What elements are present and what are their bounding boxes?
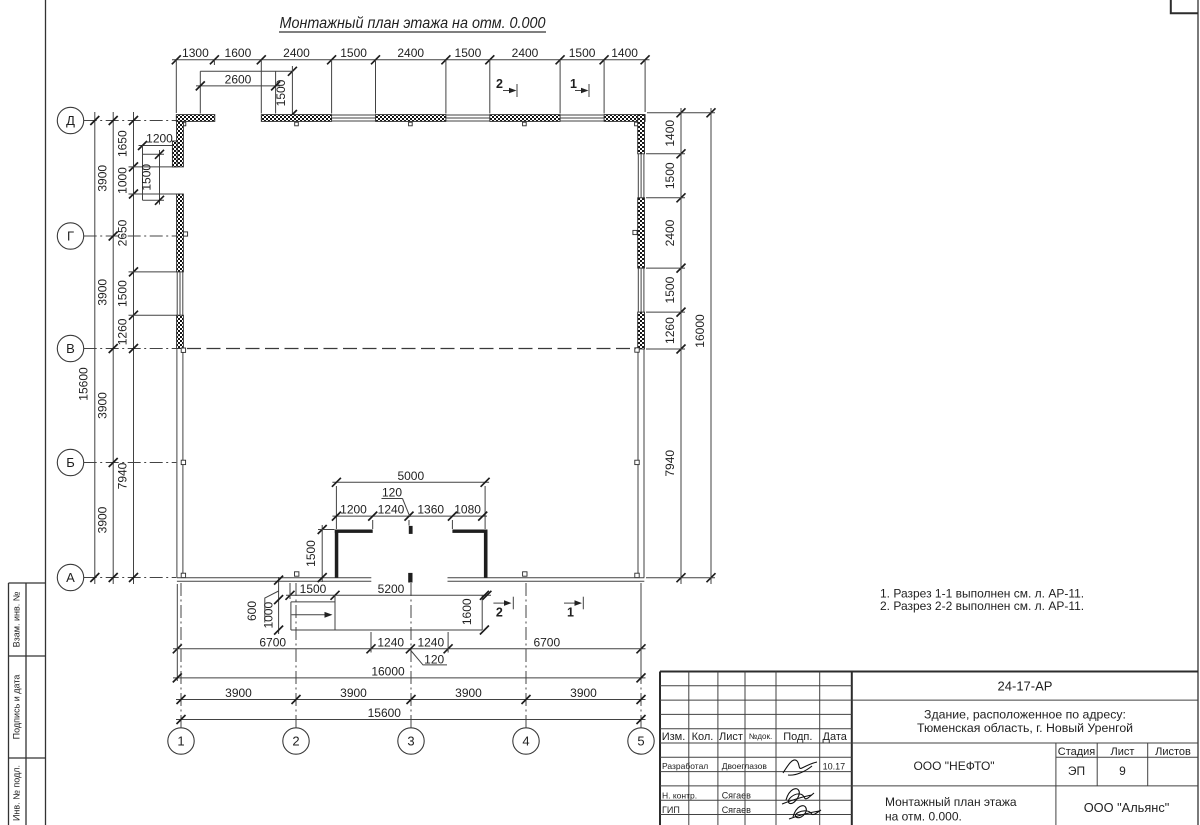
svg-text:5000: 5000 xyxy=(397,469,424,483)
svg-text:2. Разрез 2-2 выполнен см. л.: 2. Разрез 2-2 выполнен см. л. АР-11. xyxy=(880,599,1084,613)
svg-text:2400: 2400 xyxy=(283,46,310,60)
svg-text:1400: 1400 xyxy=(663,120,677,147)
svg-text:Дата: Дата xyxy=(823,731,848,743)
svg-text:ЭП: ЭП xyxy=(1068,764,1085,778)
svg-text:ГИП: ГИП xyxy=(662,805,680,815)
svg-text:1: 1 xyxy=(177,734,184,749)
svg-text:Монтажный план этажа на отм. 0: Монтажный план этажа на отм. 0.000 xyxy=(280,15,546,32)
svg-text:1240: 1240 xyxy=(417,635,444,649)
svg-text:Разработал: Разработал xyxy=(662,761,708,771)
svg-text:Стадия: Стадия xyxy=(1058,746,1096,758)
svg-text:3900: 3900 xyxy=(225,686,252,700)
svg-text:5200: 5200 xyxy=(378,582,405,596)
svg-text:1600: 1600 xyxy=(225,46,252,60)
svg-text:Сягаев: Сягаев xyxy=(722,805,751,815)
svg-text:16000: 16000 xyxy=(693,314,707,348)
svg-text:1500: 1500 xyxy=(300,582,327,596)
svg-text:1500: 1500 xyxy=(116,280,130,307)
svg-text:Г: Г xyxy=(67,229,74,244)
svg-text:2600: 2600 xyxy=(225,72,252,86)
svg-text:3900: 3900 xyxy=(95,165,109,192)
svg-text:Здание, расположенное по адрес: Здание, расположенное по адресу: xyxy=(924,708,1126,722)
svg-text:2400: 2400 xyxy=(512,46,539,60)
svg-text:15600: 15600 xyxy=(368,706,402,720)
svg-text:2400: 2400 xyxy=(663,219,677,246)
svg-text:2: 2 xyxy=(292,734,299,749)
svg-text:Д: Д xyxy=(66,113,75,128)
svg-text:1500: 1500 xyxy=(274,79,288,106)
svg-text:Лист: Лист xyxy=(719,731,743,743)
svg-text:В: В xyxy=(66,341,75,356)
svg-text:9: 9 xyxy=(1119,764,1126,778)
svg-text:на отм. 0.000.: на отм. 0.000. xyxy=(885,810,962,824)
svg-text:Подпись и дата: Подпись и дата xyxy=(12,675,22,740)
svg-text:Кол.: Кол. xyxy=(692,731,714,743)
svg-text:1500: 1500 xyxy=(663,276,677,303)
svg-text:120: 120 xyxy=(382,486,402,500)
svg-text:Изм.: Изм. xyxy=(662,731,686,743)
svg-text:1000: 1000 xyxy=(261,602,275,629)
svg-text:1400: 1400 xyxy=(611,46,638,60)
svg-text:Лист: Лист xyxy=(1111,746,1135,758)
svg-text:3900: 3900 xyxy=(95,279,109,306)
svg-text:Монтажный план этажа: Монтажный план этажа xyxy=(885,795,1017,809)
svg-text:1500: 1500 xyxy=(340,46,367,60)
svg-text:3900: 3900 xyxy=(95,392,109,419)
svg-text:Взам. инв. №: Взам. инв. № xyxy=(12,591,22,647)
svg-text:1200: 1200 xyxy=(146,132,173,146)
svg-text:24-17-АР: 24-17-АР xyxy=(998,679,1053,694)
svg-text:№док.: №док. xyxy=(749,732,772,741)
svg-text:6700: 6700 xyxy=(533,635,560,649)
svg-text:7940: 7940 xyxy=(663,450,677,477)
svg-text:3900: 3900 xyxy=(570,686,597,700)
svg-text:2: 2 xyxy=(496,606,503,620)
svg-text:1500: 1500 xyxy=(304,540,318,567)
svg-text:16000: 16000 xyxy=(371,664,405,678)
svg-text:5: 5 xyxy=(637,734,644,749)
svg-text:Тюменская область, г. Новый Ур: Тюменская область, г. Новый Уренгой xyxy=(917,721,1133,735)
svg-text:600: 600 xyxy=(245,601,259,621)
svg-text:1500: 1500 xyxy=(569,46,596,60)
svg-text:Н. контр.: Н. контр. xyxy=(662,791,697,801)
svg-text:1: 1 xyxy=(570,77,577,91)
svg-text:1500: 1500 xyxy=(663,162,677,189)
svg-text:10.17: 10.17 xyxy=(823,762,846,772)
svg-text:2650: 2650 xyxy=(116,219,130,246)
svg-text:Подп.: Подп. xyxy=(783,731,812,743)
svg-text:1240: 1240 xyxy=(377,635,404,649)
svg-text:3900: 3900 xyxy=(95,506,109,533)
svg-text:1080: 1080 xyxy=(454,503,481,517)
svg-text:1500: 1500 xyxy=(455,46,482,60)
svg-text:2400: 2400 xyxy=(397,46,424,60)
svg-text:1600: 1600 xyxy=(460,598,474,625)
svg-text:1000: 1000 xyxy=(116,167,130,194)
svg-text:1240: 1240 xyxy=(378,503,405,517)
svg-text:Двоеглазов: Двоеглазов xyxy=(722,761,768,771)
svg-text:Инв. № подл.: Инв. № подл. xyxy=(12,765,22,821)
svg-text:3900: 3900 xyxy=(455,686,482,700)
svg-text:ООО "НЕФТО": ООО "НЕФТО" xyxy=(913,759,994,773)
svg-text:1360: 1360 xyxy=(417,503,444,517)
svg-text:6700: 6700 xyxy=(259,635,286,649)
svg-text:7940: 7940 xyxy=(116,462,130,489)
svg-text:1650: 1650 xyxy=(116,130,130,157)
svg-text:15600: 15600 xyxy=(77,367,91,401)
svg-text:Б: Б xyxy=(66,455,75,470)
svg-text:120: 120 xyxy=(424,652,444,666)
svg-text:Листов: Листов xyxy=(1155,746,1191,758)
svg-text:3: 3 xyxy=(407,734,414,749)
svg-text:1260: 1260 xyxy=(116,318,130,345)
svg-text:1260: 1260 xyxy=(663,317,677,344)
svg-text:2: 2 xyxy=(496,77,503,91)
svg-text:1500: 1500 xyxy=(140,164,154,191)
svg-text:А: А xyxy=(66,570,75,585)
svg-text:1300: 1300 xyxy=(182,46,209,60)
svg-text:3900: 3900 xyxy=(340,686,367,700)
svg-text:1: 1 xyxy=(567,606,574,620)
svg-text:1200: 1200 xyxy=(340,503,367,517)
svg-text:4: 4 xyxy=(522,734,529,749)
svg-text:ООО "Альянс": ООО "Альянс" xyxy=(1084,800,1170,815)
svg-text:Сягаев: Сягаев xyxy=(722,791,751,801)
